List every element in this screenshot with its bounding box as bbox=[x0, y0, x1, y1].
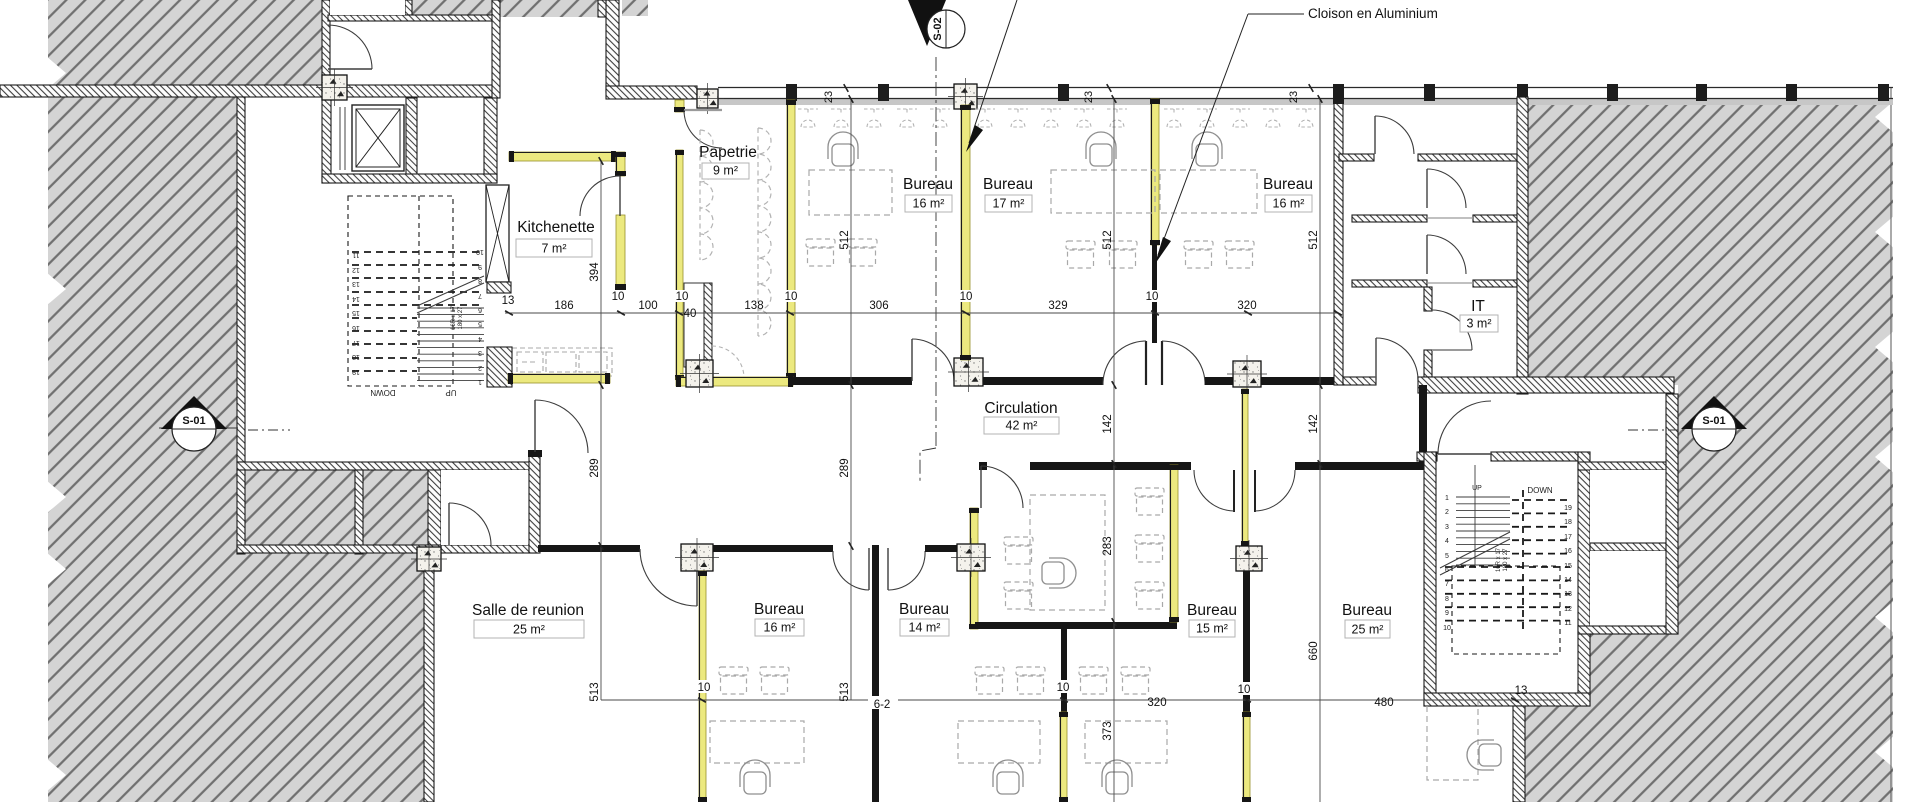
svg-text:100: 100 bbox=[638, 300, 657, 312]
svg-text:142: 142 bbox=[1308, 414, 1320, 433]
svg-text:Circulation: Circulation bbox=[984, 400, 1057, 417]
svg-text:16: 16 bbox=[352, 324, 360, 331]
svg-text:14: 14 bbox=[1564, 577, 1572, 584]
svg-text:512: 512 bbox=[1308, 230, 1320, 249]
svg-text:19: 19 bbox=[352, 368, 360, 375]
svg-text:10: 10 bbox=[1057, 682, 1070, 694]
svg-text:Bureau: Bureau bbox=[983, 176, 1033, 193]
svg-text:480: 480 bbox=[1374, 697, 1393, 709]
svg-text:5: 5 bbox=[1445, 553, 1449, 560]
svg-text:17: 17 bbox=[1564, 534, 1572, 541]
svg-text:4: 4 bbox=[478, 335, 482, 342]
svg-text:3: 3 bbox=[478, 349, 482, 356]
svg-text:S-02: S-02 bbox=[932, 17, 944, 40]
svg-text:660: 660 bbox=[1308, 641, 1320, 660]
svg-text:17 m²: 17 m² bbox=[993, 197, 1025, 211]
svg-text:8: 8 bbox=[1445, 596, 1449, 603]
svg-text:16R x 17: 16R x 17 bbox=[451, 305, 457, 330]
svg-text:Papetrie: Papetrie bbox=[699, 144, 757, 161]
svg-text:13: 13 bbox=[1564, 591, 1572, 598]
svg-text:10: 10 bbox=[1238, 684, 1251, 696]
svg-text:DOWN: DOWN bbox=[370, 388, 396, 397]
svg-text:15 m²: 15 m² bbox=[1196, 622, 1228, 636]
svg-text:Bureau: Bureau bbox=[1187, 602, 1237, 619]
svg-text:320: 320 bbox=[1237, 300, 1256, 312]
svg-text:15: 15 bbox=[1564, 563, 1572, 570]
svg-text:10: 10 bbox=[476, 248, 484, 255]
svg-text:3: 3 bbox=[1445, 524, 1449, 531]
svg-text:512: 512 bbox=[1102, 230, 1114, 249]
svg-text:289: 289 bbox=[839, 458, 851, 477]
svg-text:180 x 27: 180 x 27 bbox=[1503, 548, 1509, 572]
svg-text:Salle de reunion: Salle de reunion bbox=[472, 602, 584, 619]
svg-text:2: 2 bbox=[1445, 509, 1449, 516]
svg-text:10: 10 bbox=[698, 682, 711, 694]
svg-text:16: 16 bbox=[1564, 548, 1572, 555]
svg-text:1: 1 bbox=[478, 378, 482, 385]
svg-text:18: 18 bbox=[1564, 519, 1572, 526]
svg-text:23: 23 bbox=[1288, 91, 1300, 103]
svg-text:306: 306 bbox=[869, 300, 888, 312]
svg-text:13: 13 bbox=[1515, 685, 1528, 697]
svg-text:2: 2 bbox=[478, 364, 482, 371]
svg-text:10: 10 bbox=[612, 291, 625, 303]
svg-text:4: 4 bbox=[1445, 538, 1449, 545]
svg-text:329: 329 bbox=[1048, 300, 1067, 312]
svg-text:17: 17 bbox=[352, 339, 360, 346]
svg-text:Bureau: Bureau bbox=[899, 601, 949, 618]
svg-text:16 m²: 16 m² bbox=[913, 197, 945, 211]
svg-text:11: 11 bbox=[352, 251, 359, 258]
svg-text:Kitchenette: Kitchenette bbox=[517, 219, 595, 236]
svg-text:12: 12 bbox=[1564, 606, 1572, 613]
svg-text:186: 186 bbox=[554, 300, 573, 312]
svg-text:Bureau: Bureau bbox=[903, 176, 953, 193]
svg-text:8: 8 bbox=[478, 277, 482, 284]
svg-text:373: 373 bbox=[1102, 721, 1114, 740]
svg-text:23: 23 bbox=[823, 91, 835, 103]
svg-text:42 m²: 42 m² bbox=[1006, 419, 1038, 433]
svg-text:512: 512 bbox=[839, 230, 851, 249]
svg-text:9: 9 bbox=[478, 263, 482, 270]
svg-text:Bureau: Bureau bbox=[1342, 602, 1392, 619]
svg-text:16 m²: 16 m² bbox=[764, 621, 796, 635]
svg-text:16 m²: 16 m² bbox=[1273, 197, 1305, 211]
svg-text:289: 289 bbox=[589, 458, 601, 477]
svg-text:23: 23 bbox=[1083, 91, 1095, 103]
svg-text:S-01: S-01 bbox=[182, 415, 205, 427]
svg-text:9: 9 bbox=[1445, 610, 1449, 617]
svg-text:25 m²: 25 m² bbox=[513, 623, 545, 637]
svg-text:180 x 27: 180 x 27 bbox=[458, 306, 464, 330]
svg-text:25 m²: 25 m² bbox=[1352, 623, 1384, 637]
svg-text:19: 19 bbox=[1564, 505, 1572, 512]
svg-text:7: 7 bbox=[478, 292, 482, 299]
svg-text:11: 11 bbox=[1564, 620, 1571, 627]
svg-text:3 m²: 3 m² bbox=[1467, 317, 1492, 331]
svg-text:12: 12 bbox=[352, 266, 360, 273]
svg-text:14: 14 bbox=[352, 295, 360, 302]
svg-text:7: 7 bbox=[1445, 581, 1449, 588]
svg-text:13: 13 bbox=[502, 295, 515, 307]
svg-text:513: 513 bbox=[589, 682, 601, 701]
svg-text:10: 10 bbox=[785, 291, 798, 303]
svg-text:1: 1 bbox=[1445, 495, 1449, 502]
svg-text:18: 18 bbox=[352, 353, 360, 360]
svg-text:Bureau: Bureau bbox=[1263, 176, 1313, 193]
svg-text:IT: IT bbox=[1471, 298, 1485, 315]
svg-text:6-2: 6-2 bbox=[874, 699, 891, 711]
svg-text:14 m²: 14 m² bbox=[909, 621, 941, 635]
svg-text:513: 513 bbox=[839, 682, 851, 701]
svg-text:9 m²: 9 m² bbox=[713, 164, 738, 178]
svg-text:UP: UP bbox=[1472, 485, 1482, 492]
svg-text:5: 5 bbox=[478, 320, 482, 327]
svg-text:Bureau: Bureau bbox=[754, 601, 804, 618]
svg-text:7 m²: 7 m² bbox=[542, 242, 567, 256]
svg-text:6: 6 bbox=[1445, 567, 1449, 574]
svg-text:13: 13 bbox=[352, 280, 360, 287]
svg-text:320: 320 bbox=[1147, 697, 1166, 709]
svg-text:10: 10 bbox=[1146, 291, 1159, 303]
svg-text:15: 15 bbox=[352, 309, 360, 316]
svg-text:283: 283 bbox=[1102, 536, 1114, 555]
svg-text:UP: UP bbox=[445, 388, 456, 397]
svg-text:16R x 17: 16R x 17 bbox=[1496, 547, 1502, 572]
svg-text:10: 10 bbox=[1443, 625, 1451, 632]
svg-text:6: 6 bbox=[478, 306, 482, 313]
svg-text:138: 138 bbox=[744, 300, 763, 312]
svg-text:S-01: S-01 bbox=[1702, 415, 1725, 427]
svg-text:10: 10 bbox=[960, 291, 973, 303]
svg-text:142: 142 bbox=[1102, 414, 1114, 433]
svg-text:40: 40 bbox=[684, 308, 697, 320]
svg-text:DOWN: DOWN bbox=[1527, 486, 1553, 495]
svg-text:394: 394 bbox=[589, 262, 601, 282]
svg-text:10: 10 bbox=[676, 291, 689, 303]
svg-text:Cloison en Aluminium: Cloison en Aluminium bbox=[1308, 6, 1438, 21]
